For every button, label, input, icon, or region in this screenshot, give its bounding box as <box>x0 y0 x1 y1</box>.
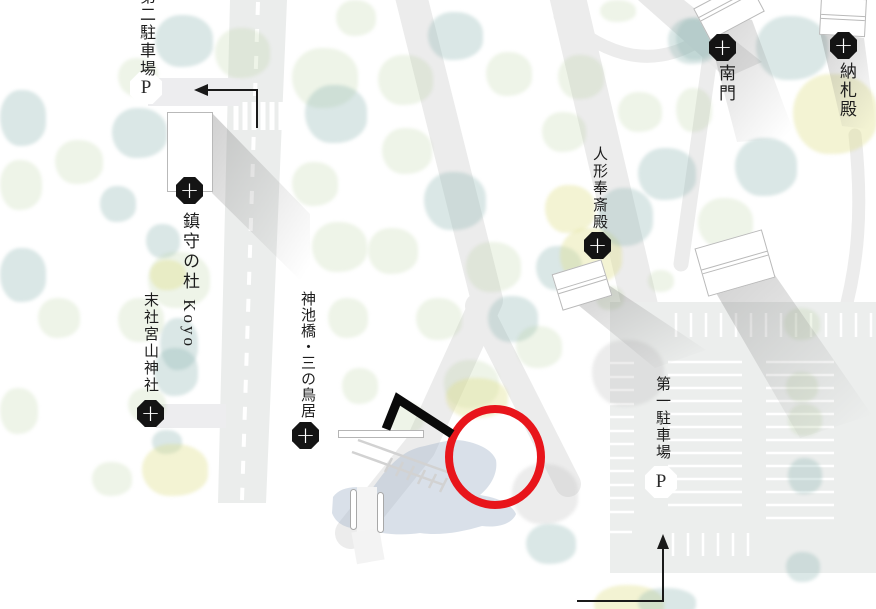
label-ningyo-hosaiden: 人形奉斎殿 <box>589 146 610 231</box>
plus-icon: + <box>588 233 607 259</box>
torii-gate <box>338 430 424 438</box>
label-shinchikebashi-sannotorii: 神池橋・三の鳥居 <box>297 291 318 419</box>
bridge-rail-left <box>350 489 357 530</box>
parking-lot-1 <box>610 302 876 573</box>
marker-nosatsuden[interactable]: + <box>830 32 857 59</box>
marker-massha-miyayama-jinja[interactable]: + <box>137 400 164 427</box>
label-massha-miyayama-jinja: 末社宮山神社 <box>140 292 161 394</box>
label-nosatsuden: 納札殿 <box>834 62 859 119</box>
parking-icon: P <box>656 471 667 493</box>
label-daini-chushajo: 第二駐車場 <box>133 0 157 78</box>
bridge-rail-right <box>377 492 384 533</box>
marker-shinchikebashi-sannotorii[interactable]: + <box>292 422 319 449</box>
plus-icon: + <box>834 33 853 59</box>
marker-daiichi-chushajo[interactable]: P <box>645 466 677 498</box>
entry-arrow-parking2 <box>208 90 257 128</box>
marker-chinju-no-mori[interactable]: + <box>176 177 203 204</box>
entry-arrow-parking2-head <box>194 84 208 96</box>
crosswalk <box>236 102 281 130</box>
building-nosatsuden <box>819 0 867 37</box>
plus-icon: + <box>180 178 199 204</box>
highlight-circle <box>445 405 545 509</box>
plus-icon: + <box>296 423 315 449</box>
shrine-map: P + + + + + + P 第二駐車場 鎮守の杜 Koyo 末社宮山神社 神… <box>0 0 876 609</box>
plus-icon: + <box>141 401 160 427</box>
label-nanmon: 南門 <box>713 64 738 104</box>
marker-nanmon[interactable]: + <box>709 34 736 61</box>
entry-arrow-parking1-head <box>657 534 669 549</box>
plus-icon: + <box>713 35 732 61</box>
bridge-approach <box>351 528 384 564</box>
label-daiichi-chushajo: 第一駐車場 <box>652 376 673 461</box>
marker-ningyo-hosaiden[interactable]: + <box>584 232 611 259</box>
label-chinju-no-mori: 鎮守の杜 Koyo <box>177 212 202 349</box>
parking-icon: P <box>141 77 152 99</box>
drive-massha <box>156 404 226 428</box>
